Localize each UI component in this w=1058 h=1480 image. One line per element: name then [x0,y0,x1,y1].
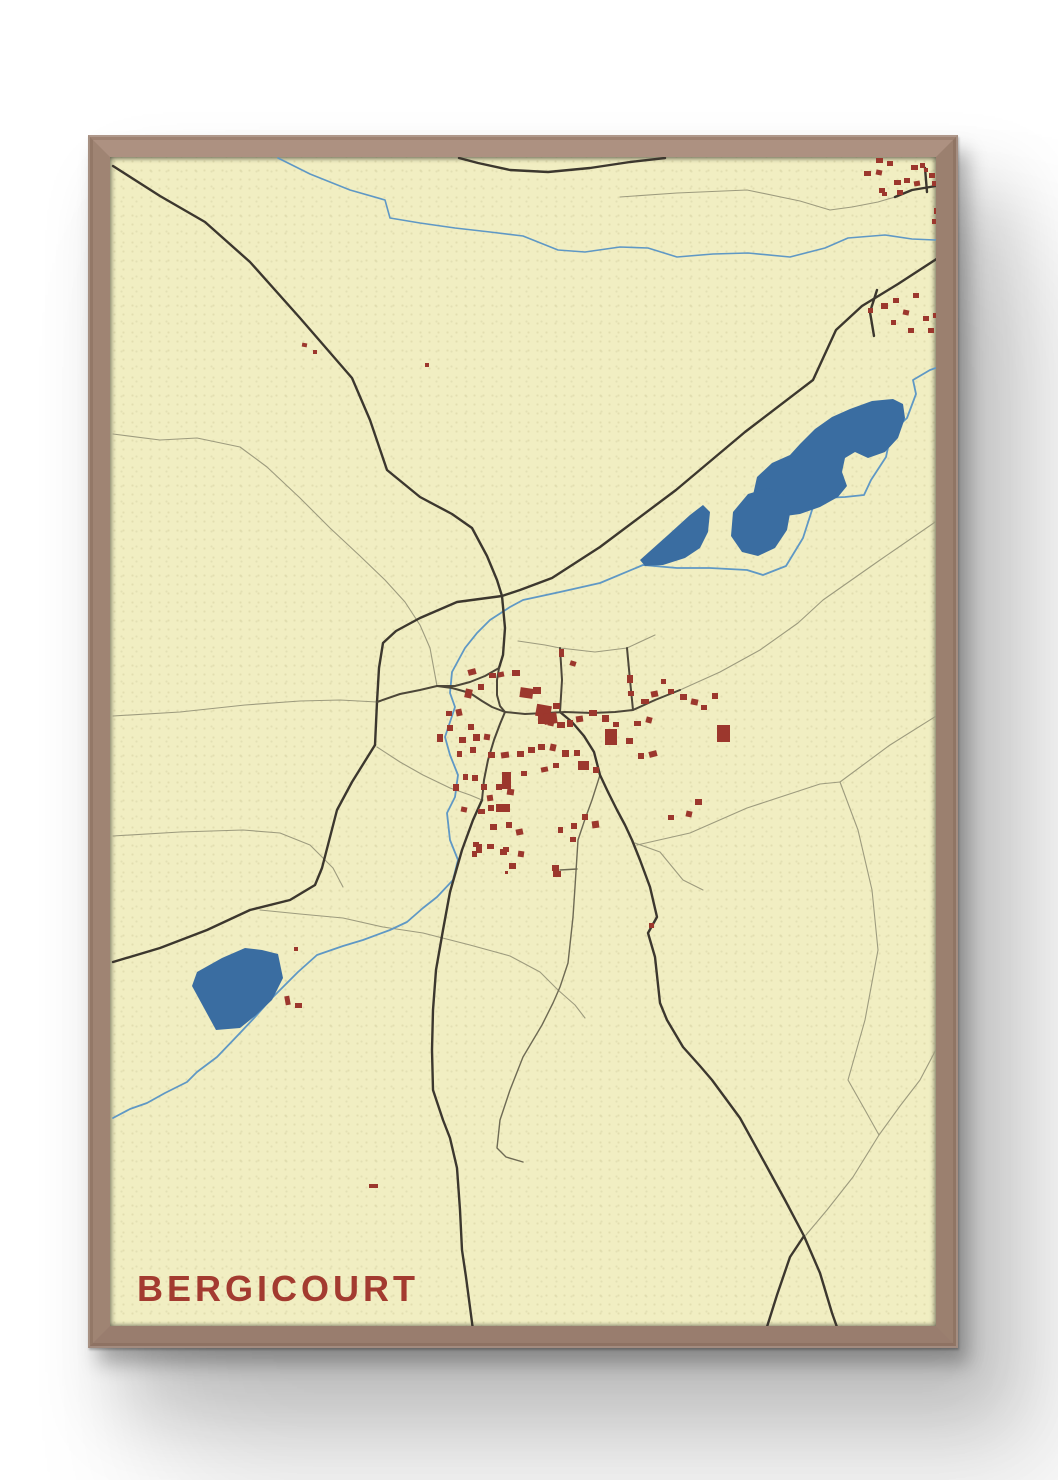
building [605,729,617,745]
building [506,822,512,828]
building [461,806,468,812]
building [876,158,883,163]
building [518,851,525,858]
building [903,309,910,315]
building [894,180,901,185]
lake [192,948,283,1030]
building [453,784,459,791]
road-minor [635,843,703,890]
building [668,815,674,820]
building [929,173,935,178]
road-minor [518,635,655,652]
village-street [560,648,562,712]
building [570,837,576,842]
building [685,810,692,817]
building [490,824,497,830]
building [628,691,634,696]
building [533,687,541,694]
building [589,710,597,716]
building [473,842,479,847]
building [592,821,600,829]
building [593,767,599,773]
wall-background: BERGICOURT [0,0,1058,1480]
building [455,708,462,716]
building [549,743,556,751]
building [425,363,429,367]
building [690,698,698,705]
building [447,725,453,731]
building [627,675,633,683]
building [557,722,565,728]
village-street [377,686,437,702]
building [882,192,887,196]
building [496,804,510,812]
building [313,350,317,354]
road-minor [879,1040,936,1135]
building [284,996,290,1006]
road-minor [260,910,585,1018]
building [487,795,494,802]
building [457,751,462,757]
building [661,679,666,684]
building [502,772,511,789]
building [923,316,929,321]
building [864,171,871,176]
building [528,747,535,753]
building [913,293,919,298]
map-poster-paper: BERGICOURT [110,157,936,1326]
building [576,716,584,723]
building [484,734,491,741]
road-secondary [497,775,600,1162]
building [478,809,485,814]
building [638,753,644,759]
building [626,738,633,744]
building [437,734,443,742]
building [567,720,573,727]
road-main [375,256,936,745]
building [553,703,560,709]
building [294,947,298,951]
building [904,178,910,183]
building [547,719,554,726]
lake [640,505,710,566]
building [553,763,559,768]
building [489,673,496,678]
building [887,161,893,166]
building [558,827,563,833]
building [473,734,480,741]
building [876,169,883,175]
road-main [113,745,375,962]
building [881,303,888,309]
building [897,190,903,195]
building [538,744,545,750]
building [496,784,502,790]
building [574,750,580,756]
picture-frame: BERGICOURT [88,135,958,1348]
building [701,705,707,710]
map-svg [110,157,936,1326]
building [893,298,899,303]
building [891,320,896,325]
building [467,668,476,676]
building [501,751,510,758]
building [928,328,934,333]
building [509,863,516,869]
building [468,724,474,730]
road-main [432,800,482,1326]
building [932,181,936,186]
building [505,871,508,874]
building [472,775,478,781]
building [650,690,658,697]
road-main [459,158,665,172]
building [645,716,652,723]
building [553,871,561,877]
building [578,761,589,770]
building [488,805,494,811]
road-main [113,166,505,668]
building [446,711,452,716]
building [648,750,657,758]
building [369,1184,378,1188]
building [459,737,466,743]
building [503,847,509,852]
building [717,725,730,742]
road-main [766,1236,804,1326]
building [649,923,654,928]
stream [278,158,936,257]
building [481,784,487,790]
poster-title: BERGICOURT [137,1271,419,1307]
road-minor [620,190,895,210]
building [920,163,925,168]
building [911,165,918,170]
road-minor [113,700,377,716]
building [521,771,527,776]
building [613,722,619,727]
building [914,181,921,187]
road-secondary [560,869,577,870]
road-minor [637,782,840,845]
building [488,752,495,758]
building [868,308,873,313]
building [933,313,936,318]
building [507,789,515,796]
building [463,774,468,780]
building [924,168,928,172]
building [680,694,687,700]
lake [731,488,791,556]
building [472,851,477,857]
building [478,684,484,690]
building [552,865,559,871]
road-minor [113,830,343,887]
building [934,208,936,214]
building [569,660,576,667]
building [515,828,523,835]
building [712,693,718,699]
building [668,689,674,694]
building [559,649,564,657]
building [295,1003,302,1008]
building [908,328,914,333]
road-minor [377,747,482,800]
building [519,687,533,699]
building [517,751,524,757]
building [470,747,476,753]
building [302,343,308,348]
road-minor [680,518,936,690]
building [602,715,609,722]
building [487,844,494,849]
building [932,219,936,224]
building [538,716,545,724]
building [641,699,649,704]
building [464,688,473,698]
building [571,823,577,829]
building [634,721,641,726]
building [541,766,549,772]
building [582,814,588,820]
building [562,750,569,757]
building [695,799,702,805]
road-main [560,712,804,1236]
road-minor [806,782,879,1235]
road-main [804,1236,838,1326]
road-minor [840,713,936,782]
building [512,670,520,676]
